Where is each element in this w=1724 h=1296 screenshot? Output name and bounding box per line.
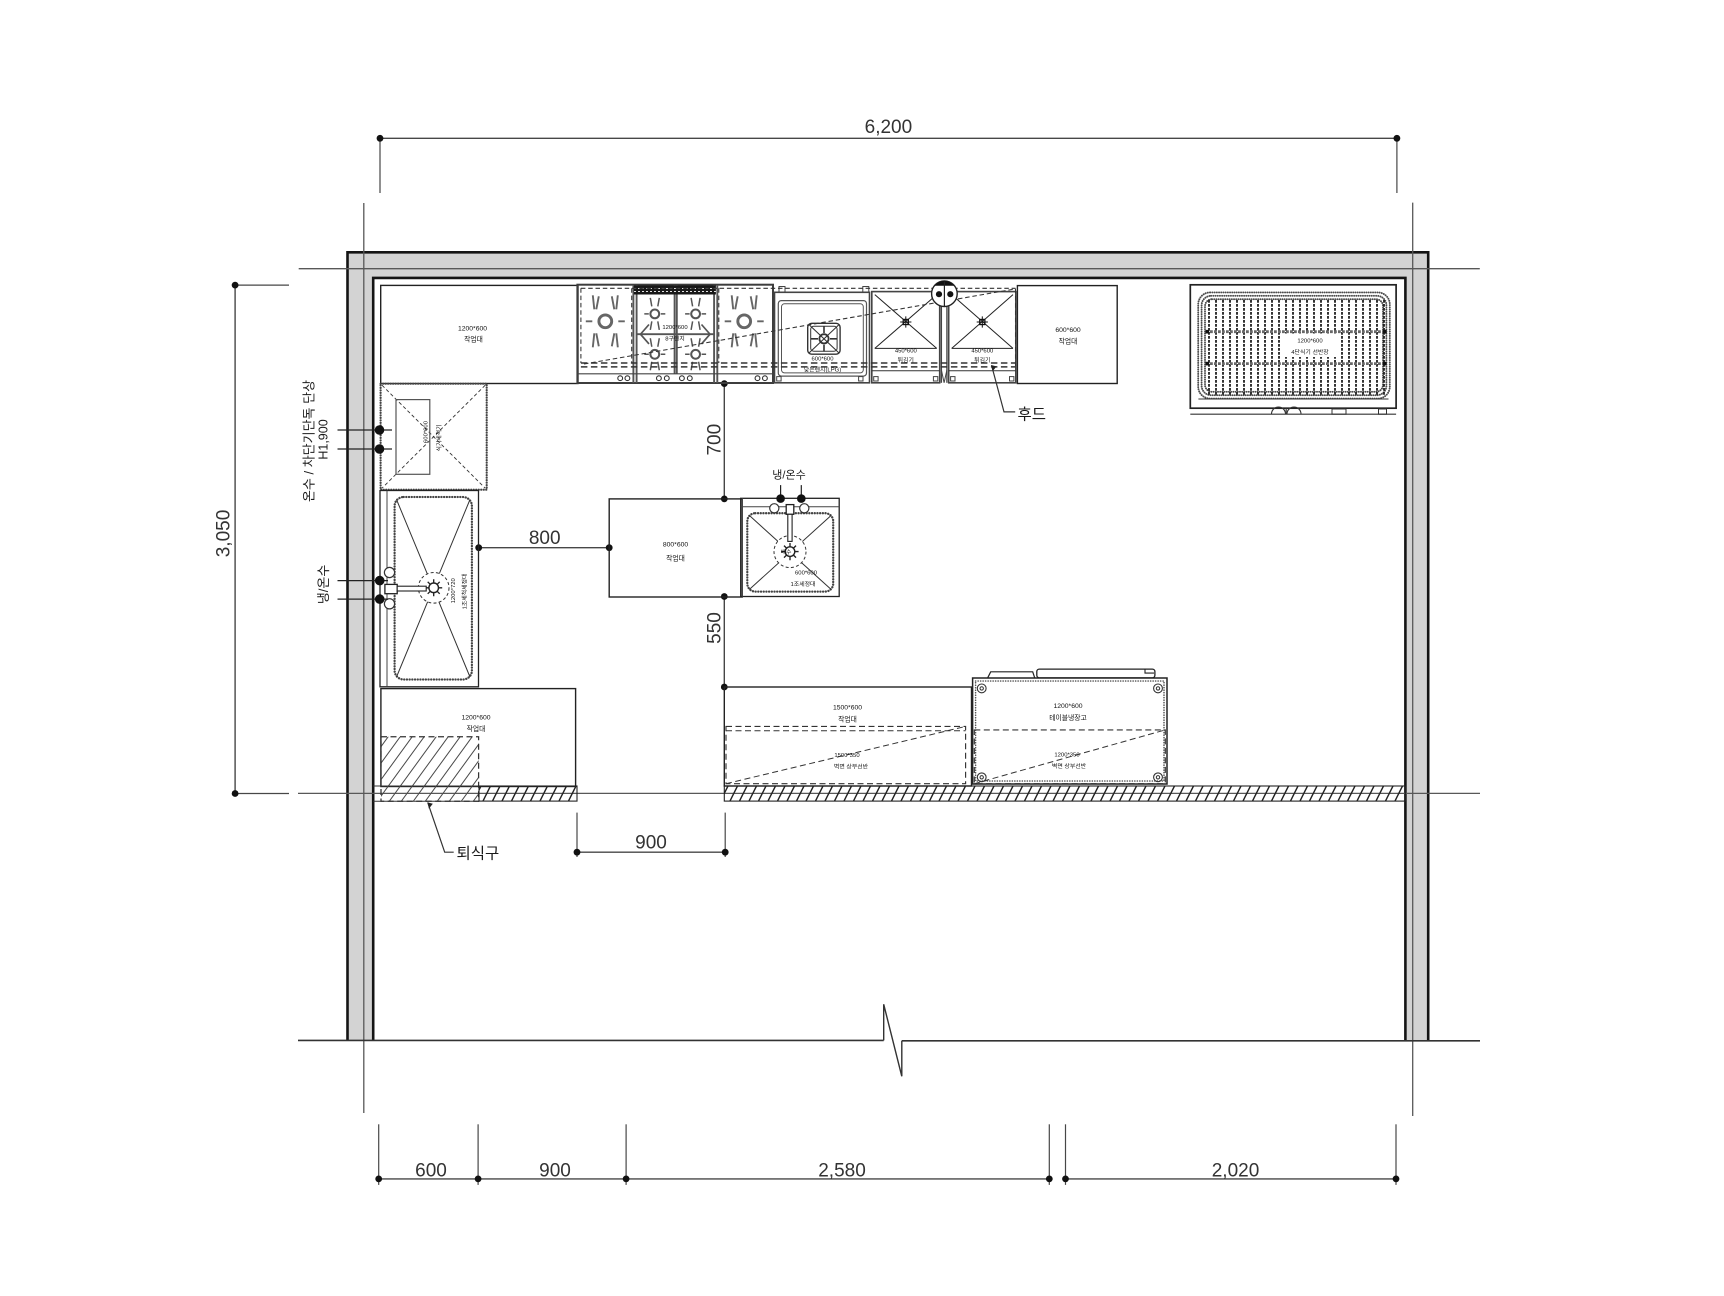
svg-text:벽면 상부선반: 벽면 상부선반 (1052, 762, 1087, 770)
svg-text:작업대: 작업대 (1059, 337, 1078, 346)
svg-text:1200*600: 1200*600 (458, 326, 487, 333)
svg-text:3,050: 3,050 (214, 510, 235, 558)
svg-text:600*600: 600*600 (424, 420, 430, 443)
svg-text:2,020: 2,020 (1212, 1161, 1260, 1182)
svg-text:2,580: 2,580 (818, 1161, 866, 1182)
svg-text:700: 700 (705, 424, 726, 456)
svg-text:550: 550 (705, 612, 726, 644)
svg-text:1200*350: 1200*350 (1054, 753, 1080, 759)
svg-text:퇴식구: 퇴식구 (457, 845, 500, 863)
svg-text:1조세척세정대: 1조세척세정대 (461, 574, 469, 610)
svg-text:450*600: 450*600 (971, 349, 994, 355)
svg-text:1200*600: 1200*600 (1053, 703, 1082, 710)
svg-text:1500*350: 1500*350 (834, 753, 860, 759)
svg-text:8구렌지: 8구렌지 (665, 335, 685, 343)
svg-text:배수: 배수 (781, 548, 792, 556)
svg-text:900: 900 (539, 1161, 571, 1182)
svg-text:테이블냉장고: 테이블냉장고 (1049, 713, 1087, 722)
svg-text:1200*600: 1200*600 (662, 325, 688, 331)
svg-text:900: 900 (635, 833, 667, 854)
svg-text:냉/온수: 냉/온수 (316, 565, 331, 605)
svg-text:작업대: 작업대 (464, 335, 483, 344)
svg-text:H1,900: H1,900 (317, 419, 331, 459)
svg-text:4단식기 선반장: 4단식기 선반장 (1291, 348, 1329, 356)
svg-text:6,200: 6,200 (865, 117, 913, 138)
svg-text:600*600: 600*600 (812, 357, 835, 363)
svg-text:벽면 상부선반: 벽면 상부선반 (834, 763, 869, 771)
svg-text:600*600: 600*600 (1055, 327, 1081, 334)
svg-text:작업대: 작업대 (838, 715, 857, 724)
svg-text:작업대: 작업대 (666, 553, 685, 562)
svg-text:600: 600 (415, 1161, 447, 1182)
svg-text:600*600: 600*600 (795, 571, 818, 577)
svg-text:식기세척기: 식기세척기 (435, 424, 443, 451)
svg-text:1200*600: 1200*600 (1297, 339, 1323, 345)
svg-text:온수 / 차단기단독 단상: 온수 / 차단기단독 단상 (302, 380, 317, 502)
svg-text:후드: 후드 (1018, 406, 1047, 424)
svg-text:800: 800 (529, 528, 561, 549)
svg-text:1조세정대: 1조세정대 (791, 580, 816, 588)
svg-text:1200*720: 1200*720 (451, 577, 457, 603)
svg-text:450*600: 450*600 (895, 349, 918, 355)
svg-text:1200*600: 1200*600 (461, 715, 490, 722)
svg-text:800*600: 800*600 (663, 542, 689, 549)
svg-text:1500*600: 1500*600 (833, 705, 862, 712)
svg-text:작업대: 작업대 (467, 724, 486, 733)
svg-text:냉/온수: 냉/온수 (772, 469, 805, 482)
